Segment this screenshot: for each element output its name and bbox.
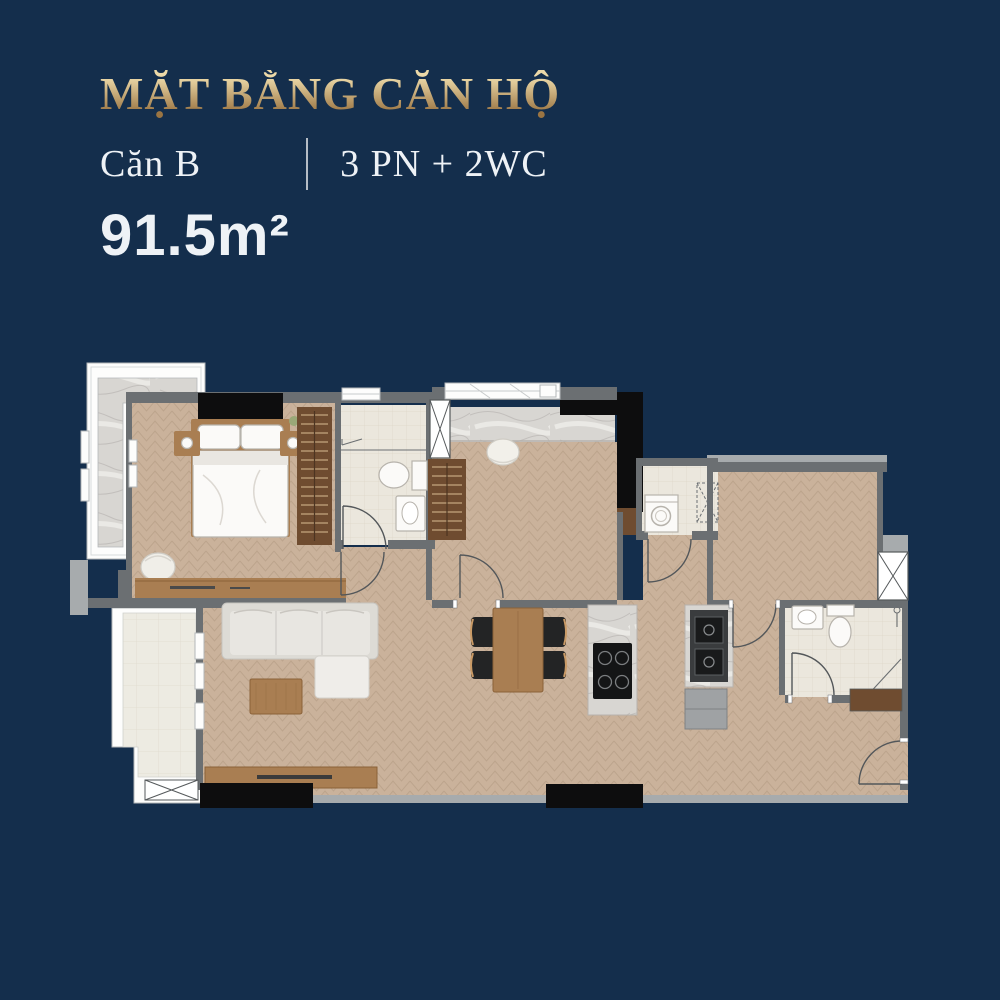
bedroom1-balcony-slider	[129, 440, 137, 462]
bed-fold	[193, 451, 288, 465]
unit-row: Căn B 3 PN + 2WC	[100, 138, 548, 190]
cooktop-icon	[593, 643, 632, 699]
page-title: MẶT BẰNG CĂN HỘ	[100, 70, 560, 118]
toilet-icon	[379, 462, 409, 488]
headboard-wall	[198, 393, 283, 422]
area-label: 91.5m²	[100, 202, 290, 269]
shaft-icon	[878, 552, 908, 600]
tv-icon	[200, 783, 313, 808]
soundbar-icon	[257, 775, 332, 779]
ac-ledge-icon	[145, 780, 198, 800]
poster: { "header": { "title": "MẶT BẰNG CĂN HỘ"…	[0, 0, 1000, 1000]
entry-cabinet	[546, 784, 643, 808]
ottoman	[315, 656, 369, 698]
shaft-icon	[430, 400, 450, 458]
wardrobe-icon	[428, 459, 466, 540]
toilet-icon	[829, 617, 851, 647]
toilet-tank	[412, 461, 427, 490]
toilet-tank	[827, 605, 854, 616]
pillow	[241, 425, 283, 449]
sink-icon	[402, 502, 418, 524]
floor-plan	[70, 355, 910, 815]
desk-chair-icon	[487, 439, 519, 465]
pillow	[198, 425, 240, 449]
balcony-window	[81, 469, 89, 501]
shoe-cabinet	[850, 689, 902, 711]
living-balcony-slider	[195, 633, 204, 659]
laundry-fixtures	[645, 495, 678, 532]
washing-machine-icon	[645, 495, 678, 532]
divider-line	[306, 138, 308, 190]
bedroom3-floor	[713, 472, 877, 600]
balcony-living	[112, 608, 203, 803]
balcony-window	[81, 431, 89, 463]
unit-label: Căn B	[100, 142, 201, 186]
armchair-icon	[141, 553, 175, 581]
wardrobe-icon	[297, 407, 332, 545]
corridor-floor	[335, 547, 435, 600]
config-label: 3 PN + 2WC	[340, 142, 548, 186]
sink-icon	[798, 610, 816, 624]
